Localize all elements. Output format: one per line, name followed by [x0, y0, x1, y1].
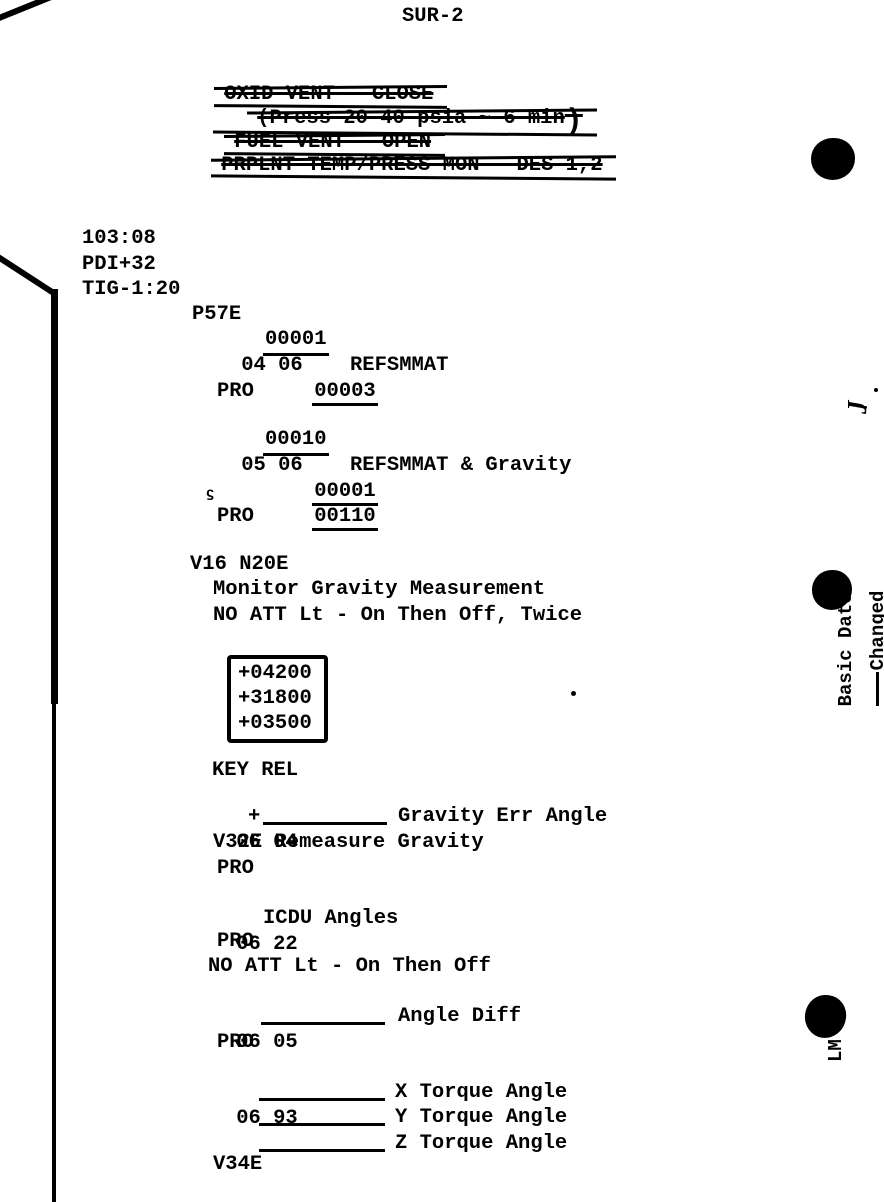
monitor-note: Monitor Gravity Measurement: [213, 577, 545, 603]
sign: +: [248, 804, 260, 830]
lm-margin-label: LM: [824, 1039, 848, 1062]
gravity-value-2: +31800: [238, 686, 324, 711]
field-label: X Torque Angle: [395, 1080, 567, 1106]
register-value: 00001: [263, 327, 329, 356]
gravity-values-box: +04200 +31800 +03500: [227, 655, 328, 743]
field-label: Y Torque Angle: [395, 1105, 567, 1131]
pro-step: PRO: [217, 379, 254, 405]
gravity-value-1: +04200: [238, 661, 324, 686]
register-label: REFSMMAT & Gravity: [350, 453, 571, 479]
no-att-note: NO ATT Lt - On Then Off: [208, 954, 491, 980]
checklist-page-sur-2: SUR-2 OXID VENT - CLOSE (Press 20-40 psi…: [0, 0, 884, 1202]
page-edge-artifact: [0, 0, 52, 22]
stray-pencil-tick: ϛ: [206, 481, 214, 507]
page-title: SUR-2: [402, 4, 464, 30]
pdi-time: PDI+32: [82, 252, 156, 278]
field-label: Angle Diff: [398, 1004, 521, 1030]
changed-label: Changed: [867, 591, 884, 671]
blank-entry-line: [259, 1131, 385, 1152]
get-time: 103:08: [82, 226, 156, 252]
field-label: Gravity Err Angle: [398, 804, 607, 830]
ink-blot-basic-date: [812, 570, 852, 610]
scan-speck: [874, 388, 878, 392]
ink-blot-top-right: [811, 138, 855, 180]
field-label: ICDU Angles: [263, 906, 398, 932]
register-row: 00110: [265, 478, 376, 556]
blank-entry-line: [261, 1004, 385, 1025]
blank-entry-line: [259, 1105, 385, 1126]
field-label: Z Torque Angle: [395, 1131, 567, 1157]
pro-step: PRO: [217, 929, 254, 955]
register-label: REFSMMAT: [350, 353, 448, 379]
struck-text: PRPLNT TEMP/PRESS MON - DES 1,2: [221, 153, 602, 179]
no-att-note: NO ATT Lt - On Then Off, Twice: [213, 603, 582, 629]
scan-speck: [571, 691, 576, 696]
blank-entry-line: [263, 804, 387, 825]
key-rel-step: KEY REL: [212, 758, 298, 784]
page-edge-artifact: [51, 289, 58, 704]
pro-step: PRO: [217, 1030, 254, 1056]
ink-blot-bottom-right: [802, 992, 849, 1040]
page-edge-artifact: [52, 700, 56, 1202]
gravity-value-3: +03500: [238, 711, 324, 736]
remeasure-step: V32E Remeasure Gravity: [213, 830, 484, 856]
pro-step: PRO: [217, 856, 254, 882]
register-value: 00010: [263, 427, 329, 456]
scan-speck: [864, 406, 867, 409]
register-value: 00110: [312, 505, 378, 531]
verb-command: V16 N20E: [190, 552, 288, 578]
blank-entry-line: [259, 1080, 385, 1101]
program-callout: P57E: [192, 302, 241, 328]
deleted-step-prplnt: PRPLNT TEMP/PRESS MON - DES 1,2: [172, 127, 603, 205]
register-value: 00003: [312, 380, 378, 406]
verb-command: V34E: [213, 1152, 262, 1178]
page-edge-artifact: [0, 252, 55, 295]
pro-step: PRO: [217, 504, 254, 530]
changed-date-line: Changed July 12 1969: [842, 591, 884, 716]
tig-time: TIG-1:20: [82, 277, 180, 303]
